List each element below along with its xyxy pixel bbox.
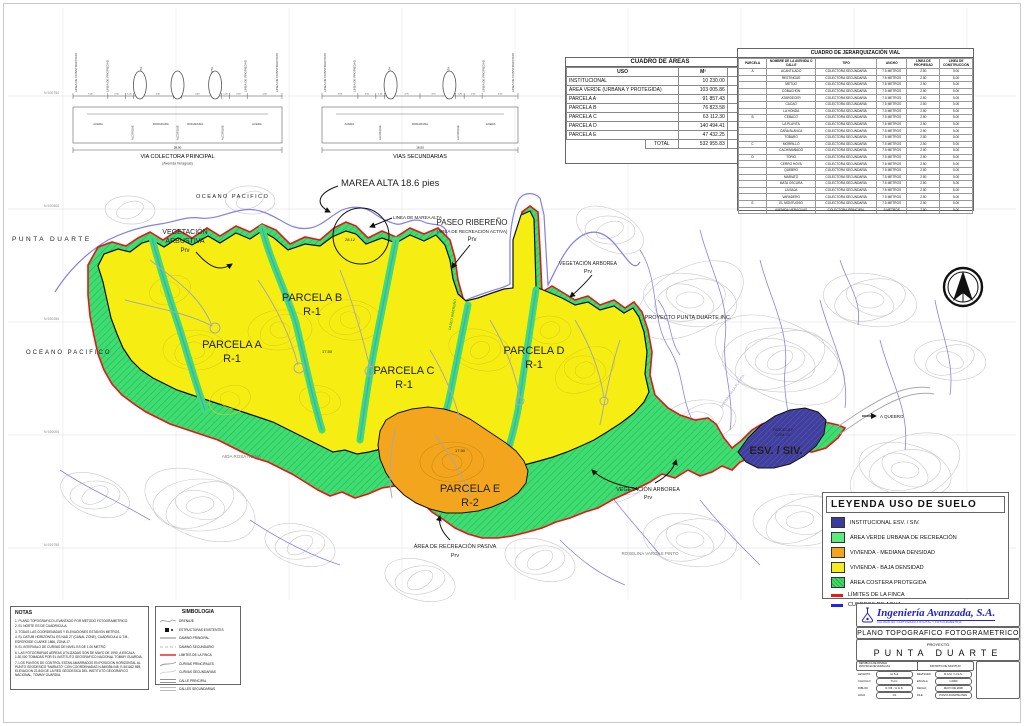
plan-title: PLANO TOPOGRAFICO FOTOGRAMETRICO: [856, 627, 1020, 639]
project-name: PUNTA DUARTE: [857, 648, 1019, 658]
dim-label: 1.20: [223, 94, 228, 96]
cuneta-ellipse: [209, 71, 222, 99]
contour-ring: [890, 461, 919, 479]
title-block-field-row: LEVANTOI.A.S.A.REVISADOR.A.M. / H.G.S.: [856, 671, 974, 678]
punta-duarte-label: PUNTA DUARTE: [12, 236, 92, 243]
contour-ring: [79, 482, 111, 508]
paseo-ribereno-sub: (AREA DE RECREACIÓN ACTIVA): [437, 228, 508, 234]
section-bottom-label: RODADURA: [187, 122, 203, 126]
area-table-row: PARCELA B76 823.5815%: [567, 104, 754, 113]
symbology-label: CALLE PRINCIPAL: [179, 679, 207, 683]
field-value: PUNTA DUARTE.DWG: [935, 692, 972, 699]
symbology-label: CALLES SECUNDARIAS: [179, 687, 215, 691]
contour-ring: [260, 516, 340, 574]
note-item: 7. LOS PUNTOS DE CONTROL ESTAN AMARRADOS…: [15, 661, 144, 678]
road-table-row: VARADEROCOLECTORA SECUNDARIA7.5 METROS2.…: [739, 194, 973, 201]
contour-ring: [404, 566, 436, 594]
section-bottom-label: ALCORQUE: [131, 125, 135, 140]
contour-ring: [54, 463, 136, 526]
legend-item: ÁREA VERDE URBANA DE RECREACIÓN: [831, 532, 1000, 543]
symbology-label: CURVAS PRINCIPALES: [179, 662, 214, 666]
legend-item: VIVIENDA - MEDIANA DENSIDAD: [831, 547, 1000, 558]
area-table-row: PARCELA C63 112.3012%: [567, 113, 754, 122]
section-title: VIA COLECTORA PRINCIPAL: [140, 154, 214, 160]
location-row: REPUBLICA DE PANAMA PROVINCIA DE VERAGUA…: [856, 661, 974, 671]
legend-label: LÍMITES DE LA FINCA: [848, 592, 905, 598]
road-table-row: DTORIOCOLECTORA SECUNDARIA7.5 METROS2.50…: [739, 154, 973, 161]
road-hierarchy-table: CUADRO DE JERARQUIZACIÓN VIAL PARCELA NO…: [737, 48, 974, 211]
symbology-swatch: [160, 644, 176, 650]
contour-ring: [569, 196, 651, 264]
contour-ring: [856, 292, 884, 308]
field-label: CALCULO: [856, 680, 876, 683]
legend-item: VIVIENDA - BAJA DENSIDAD: [831, 562, 1000, 573]
road-table-row: EEL MONTUOSOCOLECTORA SECUNDARIA7.5 METR…: [739, 200, 973, 207]
road-table-row: CAÑA BLANCACOLECTORA SECUNDARIA7.5 METRO…: [739, 128, 973, 135]
grid-label: N 920250: [44, 317, 59, 321]
contour-ring: [640, 507, 741, 573]
grid-label: N 919750: [44, 543, 59, 547]
veg-arborea-bottom-label: VEGETACIÓN ARBOREA: [616, 486, 680, 493]
area-table-row: PARCELA D140 494.4126%: [567, 122, 754, 131]
symbology-item: LIMITES DE LA FINCA: [160, 652, 236, 658]
road-table-row: TOBAROCOLECTORA SECUNDARIA7.5 METROS2.50…: [739, 134, 973, 141]
road-table-row: CACAOCOLECTORA SECUNDARIA7.5 METROS2.505…: [739, 102, 973, 109]
contour-ring: [785, 510, 815, 531]
road-table-row: AACANTILADOCOLECTORA SECUNDARIA7.5 METRO…: [739, 69, 973, 76]
symbology-label: CAMINO PRINCIPAL: [179, 636, 209, 640]
dim-label: 5.00: [262, 94, 267, 96]
blueline-swatch: [831, 604, 843, 607]
note-item: 5. EL INTERVALO DE CURVAS DE NIVEL ES DE…: [15, 645, 144, 649]
road-table-row: LA PLAYITACOLECTORA SECUNDARIA7.5 METROS…: [739, 121, 973, 128]
dim-1750-a: 17.50: [322, 349, 333, 354]
section-bottom-label: RODADURA: [153, 122, 169, 126]
contour-ring: [524, 546, 556, 574]
note-item: 2. EL NORTE ES DE CUADRICULA.: [15, 624, 144, 628]
land-use-legend: LEYENDA USO DE SUELO INSTITUCIONAL ESV. …: [822, 492, 1009, 599]
notes-title: NOTAS: [15, 610, 144, 617]
symbology-item: CURVAS SECUNDARIAS: [160, 669, 236, 675]
stamp-box: [976, 661, 1020, 699]
field-value: 1:2000: [935, 678, 972, 685]
field-value: I.A.S.A.: [876, 671, 913, 678]
parcela-a-zone: R-1: [223, 353, 241, 365]
contour-ring: [159, 472, 241, 538]
veg-arborea-bottom-prv: Prv: [644, 495, 653, 501]
contour-ring: [764, 346, 796, 374]
parcela-e-label: PARCELA E: [440, 483, 500, 495]
dim-label: 2.50: [471, 94, 476, 96]
contour-ring: [393, 563, 446, 597]
grid-label: N 920000: [44, 430, 59, 434]
section-bottom-label: RODADURA: [412, 122, 428, 126]
field-label: ESCALA: [915, 680, 935, 683]
area-table-total-row: TOTAL 532 955.83 100%: [567, 140, 754, 149]
area-table-row: PARCELA A91 857.4317%: [567, 95, 754, 104]
field-label: LEVANTO: [856, 673, 876, 676]
legend-label: INSTITUCIONAL ESV. / SIV.: [850, 520, 920, 526]
contour-ring: [500, 531, 580, 589]
hatch-swatch: [831, 577, 845, 588]
road-table-row: COBACHÓNCOLECTORA SECUNDARIA7.5 METROS2.…: [739, 88, 973, 95]
section-bottom-label: ALCORQUE: [220, 125, 224, 140]
cuneta-ellipse: [443, 71, 456, 99]
road-table-row: AVENIDA VERAGUASCOLECTORA PRINCIPAL9 MET…: [739, 207, 973, 214]
contour-ring: [772, 501, 827, 540]
parcela-f-label: PARCELA F: [773, 428, 794, 432]
symbology-label: DRENAJE: [179, 619, 194, 623]
road-table-row: MARIATOCOLECTORA SECUNDARIA7.5 METROS2.5…: [739, 174, 973, 181]
veg-arbustiva-label2: ARBUSTIVA: [165, 238, 204, 245]
legend-item: INSTITUCIONAL ESV. / SIV.: [831, 517, 1000, 528]
dim-label: 3.75: [404, 94, 409, 96]
company-tagline: CALIDAD EN CARTOGRAFIA DIGITAL Y FOTOGRA…: [877, 620, 995, 624]
section-bottom-label: ACERA: [345, 122, 355, 126]
contour-ring: [912, 336, 988, 383]
field-value: 1/1: [876, 692, 913, 699]
esv-siv-label: ESV. / SIV.: [749, 445, 802, 457]
field-value: D.V.B. / H.G.S.: [876, 685, 913, 692]
dim-label: 3.75: [431, 94, 436, 96]
contour-ring: [740, 331, 820, 389]
area-table-row: ÁREA VERDE (URBANA Y PROTEGIDA)103 005.8…: [567, 86, 754, 95]
contour-ring: [104, 195, 155, 226]
symbology-item: CALLES SECUNDARIAS: [160, 686, 236, 692]
a-quebro-label: A QUEBRO: [880, 414, 904, 419]
parcela-b-zone: R-1: [303, 306, 321, 318]
contour-ring: [70, 480, 121, 510]
note-item: 3. TODAS LAS COORDENADAS Y ELEVACIONES E…: [15, 630, 144, 634]
note-item: 1. PLANO TOPOGRAFICO LEVANTADO POR METOD…: [15, 619, 144, 623]
field-label: FILE: [915, 694, 935, 697]
dim-label: 5.00: [498, 94, 503, 96]
symbology-swatch: [160, 669, 176, 675]
dim-1750-b: 17.50: [455, 448, 466, 453]
section-top-label: LINEA DE CONSTRUCCION: [275, 53, 279, 92]
cuneta-ellipse: [133, 71, 146, 99]
dim-label: 4.50: [156, 94, 161, 96]
symbology-swatch: [160, 635, 176, 641]
contour-ring: [284, 531, 316, 559]
total-label: TOTAL: [645, 140, 679, 149]
oceano-pacifico-top-label: OCEANO PACIFICO: [196, 194, 269, 200]
dim-label: 1.20: [378, 94, 383, 96]
orange-swatch: [831, 547, 845, 558]
redline-swatch: [831, 594, 843, 597]
contour-ring: [727, 319, 833, 401]
area-table: CUADRO DE ÁREAS USO M² % INSTITUCIONAL10…: [565, 57, 755, 164]
quebrada-la-playita-label: QUEBRADA LA PLAYITA: [720, 373, 746, 408]
area-table-row: PARCELA E47 432.259%: [567, 131, 754, 140]
marea-alta-label: MAREA ALTA 18.6 pies: [341, 178, 440, 189]
symbology-title: SIMBOLOGIA: [156, 609, 240, 615]
contour-ring: [830, 272, 910, 328]
contour-ring: [922, 339, 978, 380]
road-table-row: BCEBACOCOLECTORA SECUNDARIA7.5 METROS2.5…: [739, 115, 973, 122]
parcela-e-zone: R-2: [461, 497, 479, 509]
recreacion-pasiva-prv: Prv: [451, 553, 460, 559]
dim-label: 1.20: [458, 94, 463, 96]
road-table-row: CMORRILLOCOLECTORA SECUNDARIA7.5 METROS2…: [739, 141, 973, 148]
field-value: T.H.C.: [876, 678, 913, 685]
notes-box: NOTAS 1. PLANO TOPOGRAFICO LEVANTADO POR…: [10, 606, 149, 690]
note-item: 4. EL DATUM HORIZONTAL ES NAD 27 (CANAL …: [15, 635, 144, 643]
symbology-item: CURVAS PRINCIPALES: [160, 661, 236, 667]
dim-label: 4.50: [195, 94, 200, 96]
legend-item: LÍMITES DE LA FINCA: [831, 592, 1000, 598]
field-label: DIBUJO: [856, 687, 876, 690]
location-district: DISTRITO DE MONTIJO: [918, 662, 974, 670]
road-table-header: PARCELA NOMBRE DE LA AVENIDA O CALLE TIP…: [739, 59, 973, 69]
legend-label: VIVIENDA - MEDIANA DENSIDAD: [850, 550, 935, 556]
symbology-swatch: [160, 618, 176, 624]
legend-label: VIVIENDA - BAJA DENSIDAD: [850, 565, 924, 571]
symbology-label: CAMINO SECUNDARIO: [179, 645, 214, 649]
road-table-row: LA HONDACOLECTORA SECUNDARIA7.5 METROS2.…: [739, 108, 973, 115]
cuneta-ellipse: [384, 71, 397, 99]
road-table-row: MATA OSCURACOLECTORA SECUNDARIA7.5 METRO…: [739, 181, 973, 188]
road-table-row: RESTINGUECOLECTORA SECUNDARIA7.5 METROS2…: [739, 75, 973, 82]
field-label: FECHA: [915, 687, 935, 690]
roselina-vargas-label: ROSELINA VARGAS PINTO: [621, 551, 679, 556]
field-label: HOJA: [856, 694, 876, 697]
symbology-item: ESTRUCTURAS EXISTENTES: [160, 627, 236, 633]
legend-label: ÁREA VERDE URBANA DE RECREACIÓN: [850, 535, 957, 541]
cross-section-secundarias: 5.002.501.201.203.753.751.201.202.505.00…: [322, 53, 518, 160]
legend-title: LEYENDA USO DE SUELO: [826, 496, 1005, 513]
contour-ring: [153, 478, 248, 532]
field-value: MAYO DE 2008: [935, 685, 972, 692]
section-top-label: LINEA DE PROPIEDAD: [482, 59, 486, 92]
contour-ring: [172, 486, 227, 525]
paseo-ribereno-label: PASEO RIBEREÑO: [437, 218, 508, 227]
section-top-label: LINEA DE CONSTRUCCION: [323, 53, 327, 92]
section-total-width: 28.00: [174, 146, 182, 150]
road-table-row: LA BAJACOLECTORA SECUNDARIA7.5 METROS2.5…: [739, 187, 973, 194]
contour-ring: [676, 292, 704, 308]
cross-section-principal: 5.002.501.201.204.501.204.501.201.202.50…: [73, 53, 282, 165]
symbology-item: CAMINO SECUNDARIO: [160, 644, 236, 650]
parcela-c-zone: R-1: [395, 379, 413, 391]
symbology-swatch: [160, 661, 176, 667]
flask-logo-icon: [861, 607, 874, 623]
grid-label: N 920500: [44, 204, 59, 208]
veg-arborea-top-label: VEGETACIÓN ARBOREA: [559, 260, 618, 267]
contour-ring: [185, 495, 215, 516]
section-top-label: LINEA DE PROPIEDAD: [352, 59, 356, 92]
contour-ring: [224, 185, 275, 216]
parcela-a-label: PARCELA A: [202, 339, 262, 351]
symbology-swatch: [160, 678, 176, 684]
parcela-d-zone: R-1: [525, 359, 543, 371]
section-bottom-label: ACERA: [486, 122, 496, 126]
road-cross-sections: 5.002.501.201.204.501.204.501.201.202.50…: [73, 53, 518, 165]
contour-ring: [820, 267, 921, 333]
section-top-label: LINEA DE PROPIEDAD: [106, 59, 110, 92]
area-table-header: USO M² %: [567, 68, 754, 77]
road-table-row: CERRO HOYACOLECTORA SECUNDARIA7.5 METROS…: [739, 161, 973, 168]
contour-ring: [134, 454, 266, 557]
symbology-label: ESTRUCTURAS EXISTENTES: [179, 628, 224, 632]
yellow-swatch: [831, 562, 845, 573]
proyecto-inc-label: PROYECTO PUNTA DUARTE INC.: [645, 315, 732, 321]
recreacion-pasiva-label: ÁREA DE RECREACIÓN PASIVA: [414, 543, 497, 550]
section-top-label: LINEA DE CONSTRUCCION: [511, 53, 515, 92]
area-table-row: INSTITUCIONAL10 230.002%: [567, 77, 754, 86]
title-block-field-row: CALCULOT.H.C.ESCALA1:2000: [856, 678, 974, 685]
section-subtitle: (Avenida Veraguas): [162, 162, 193, 166]
contour-ring: [676, 532, 704, 548]
section-bottom-label: ALCORQUE: [176, 125, 180, 140]
field-label: REVISADO: [915, 673, 935, 676]
title-block-field-row: HOJA1/1FILEPUNTA DUARTE.DWG: [856, 692, 974, 699]
section-total-width: 18.50: [416, 146, 424, 150]
veg-arbustiva-prv: Prv: [181, 248, 190, 254]
parcela-b-label: PARCELA B: [282, 292, 342, 304]
symbology-item: CALLE PRINCIPAL: [160, 678, 236, 684]
road-table-row: QUEBROCOLECTORA SECUNDARIA7.5 METROS2.50…: [739, 167, 973, 174]
north-arrow-icon: [944, 268, 982, 306]
symbology-swatch: [160, 627, 176, 633]
legend-label: ÁREA COSTERA PROTEGIDA: [850, 580, 926, 586]
dim-label: 5.00: [338, 94, 343, 96]
project-label: PROYECTO: [857, 642, 1019, 647]
aida-rosa-reina-label: AIDA ROSA REINA: [222, 454, 261, 459]
section-bottom-label: ACERA: [252, 122, 262, 126]
section-title: VIAS SECUNDARIAS: [393, 154, 447, 160]
section-top-label: LINEA DE PROPIEDAD: [243, 59, 247, 92]
road-table-title: CUADRO DE JERARQUIZACIÓN VIAL: [738, 49, 973, 58]
green-swatch: [831, 532, 845, 543]
section-bottom-label: ACERA: [93, 122, 103, 126]
marea-dim: 28.12: [345, 237, 356, 242]
contour-ring: [876, 446, 933, 494]
dim-label: 5.00: [88, 94, 93, 96]
navy-swatch: [831, 517, 845, 528]
legend-item: ÁREA COSTERA PROTEGIDA: [831, 577, 1000, 588]
road-table-row: CACHIMAÑADOCOLECTORA SECUNDARIA7.5 METRO…: [739, 148, 973, 155]
symbology-item: DRENAJE: [160, 618, 236, 624]
road-table-row: ATARDECERCOLECTORA SECUNDARIA7.5 METROS2…: [739, 95, 973, 102]
road-table-row: METIJOCOLECTORA SECUNDARIA7.5 METROS2.50…: [739, 82, 973, 89]
title-block-field-row: DIBUJOD.V.B. / H.G.S.FECHAMAYO DE 2008: [856, 685, 974, 692]
project-name-box: PROYECTO PUNTA DUARTE: [856, 639, 1020, 661]
symbology-item: CAMINO PRINCIPAL: [160, 635, 236, 641]
section-bottom-label: ALCORQUE: [378, 125, 382, 140]
title-block: Ingeniería Avanzada, S.A. CALIDAD EN CAR…: [856, 603, 1020, 699]
contour-ring: [234, 188, 266, 213]
paseo-ribereno-prv: Prv: [468, 237, 477, 243]
parcela-c-label: PARCELA C: [374, 365, 435, 377]
dim-label: 2.50: [236, 94, 241, 96]
dim-label: 2.50: [114, 94, 119, 96]
dim-label: 2.50: [365, 94, 370, 96]
parcel-f-institutional-area: [738, 408, 826, 468]
contour-ring: [114, 198, 146, 223]
dim-label: 1.20: [127, 94, 132, 96]
veg-arborea-top-prv: Prv: [584, 269, 593, 275]
section-bottom-label: ALCORQUE: [456, 125, 460, 140]
symbology-label: LIMITES DE LA FINCA: [179, 653, 212, 657]
grid-label: N 920750: [44, 91, 59, 95]
symbology-label: CURVAS SECUNDARIAS: [179, 670, 216, 674]
contour-ring: [866, 445, 943, 496]
company-name: Ingeniería Avanzada, S.A.: [877, 607, 995, 619]
symbology-swatch: [160, 652, 176, 658]
contour-ring: [753, 343, 806, 377]
parcela-d-label: PARCELA D: [504, 345, 565, 357]
section-top-label: LINEA DE CONSTRUCCION: [74, 53, 78, 92]
contour-ring: [380, 551, 460, 609]
title-block-fields: LEVANTOI.A.S.A.REVISADOR.A.M. / H.G.S.CA…: [856, 671, 974, 699]
oceano-pacifico-left-label: OCEANO PACIFICO: [26, 350, 112, 356]
location-province: PROVINCIA DE VERAGUAS: [859, 666, 915, 669]
symbology-box: SIMBOLOGIA DRENAJEESTRUCTURAS EXISTENTES…: [155, 606, 241, 685]
veg-arbustiva-label1: VEGETACIÓN: [162, 227, 207, 236]
linea-marea-alta-label: LINEA DE MAREA ALTA: [393, 215, 442, 220]
note-item: 6. LAS FOTOGRAFIAS AEREAS UTILIZADAS SON…: [15, 651, 144, 659]
cuneta-ellipse: [171, 71, 184, 99]
parcela-f-com: COM. M.: [775, 433, 790, 437]
field-value: R.A.M. / H.G.S.: [935, 671, 972, 678]
area-table-title: CUADRO DE ÁREAS: [566, 58, 754, 67]
symbology-swatch: [160, 686, 176, 692]
company-logo-row: Ingeniería Avanzada, S.A. CALIDAD EN CAR…: [856, 603, 1020, 627]
total-value: 532 955.83: [679, 140, 728, 149]
